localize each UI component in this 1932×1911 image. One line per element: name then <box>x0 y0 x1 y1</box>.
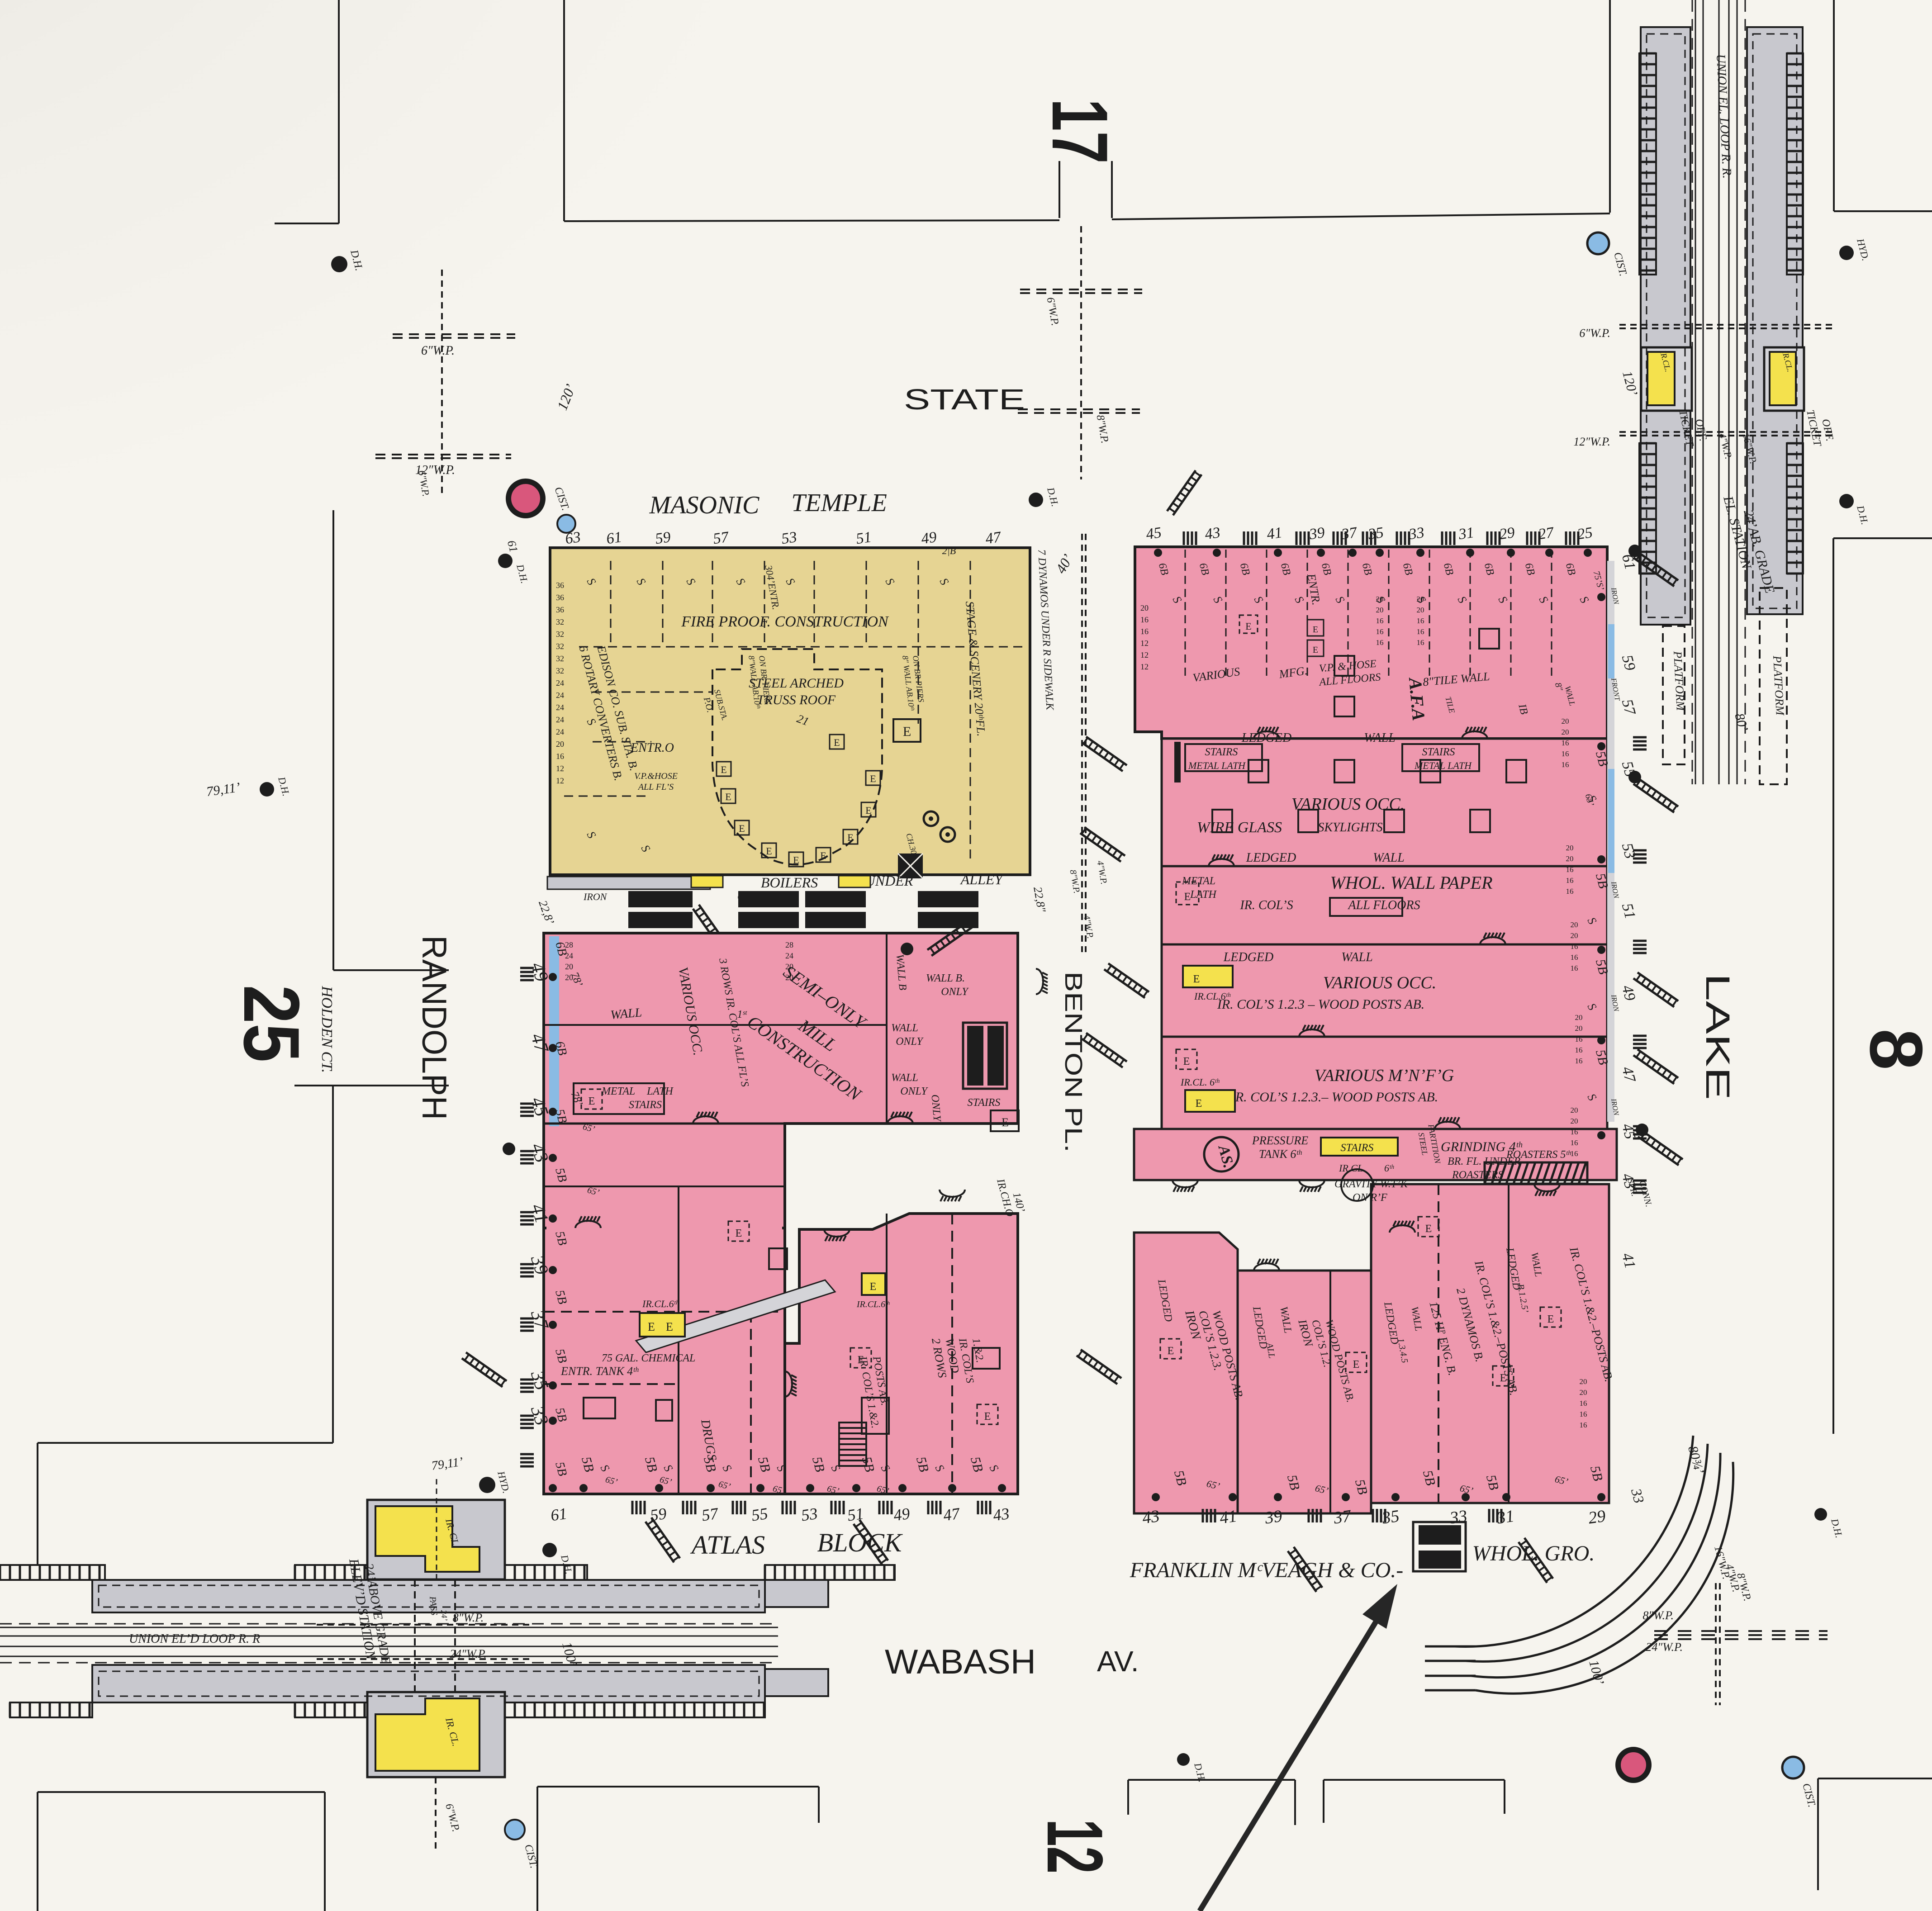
svg-text:35: 35 <box>1381 1507 1400 1528</box>
svg-text:20: 20 <box>1417 595 1424 603</box>
svg-text:ONLY: ONLY <box>900 1086 928 1097</box>
svg-text:16: 16 <box>1575 1035 1583 1043</box>
svg-text:25: 25 <box>228 985 316 1062</box>
svg-text:E: E <box>1002 1116 1009 1129</box>
svg-text:E: E <box>1184 891 1191 903</box>
svg-text:16: 16 <box>1562 739 1569 747</box>
svg-text:20: 20 <box>1140 603 1149 612</box>
svg-text:37: 37 <box>1332 1506 1353 1527</box>
svg-text:16: 16 <box>1571 964 1578 972</box>
svg-text:ALL FLOORS: ALL FLOORS <box>1348 898 1420 912</box>
svg-text:53: 53 <box>800 1504 819 1525</box>
svg-text:BOILERS: BOILERS <box>761 874 818 891</box>
svg-text:12: 12 <box>1031 1819 1120 1874</box>
svg-text:E: E <box>903 724 911 739</box>
svg-text:WALL: WALL <box>1341 950 1373 964</box>
svg-text:E: E <box>870 773 876 784</box>
svg-text:20: 20 <box>1562 728 1569 736</box>
svg-text:IR.CL.6ᵗʰ: IR.CL.6ᵗʰ <box>642 1298 679 1309</box>
svg-text:VARIOUS OCC.: VARIOUS OCC. <box>1323 973 1437 992</box>
svg-text:24’: 24’ <box>439 1610 449 1622</box>
svg-text:IR.CL.6ᵗʰ: IR.CL.6ᵗʰ <box>856 1299 890 1309</box>
svg-text:20: 20 <box>1571 1106 1578 1114</box>
svg-text:20: 20 <box>1575 1013 1583 1022</box>
svg-text:ENTR.O: ENTR.O <box>630 741 674 755</box>
svg-text:16: 16 <box>1376 616 1384 625</box>
svg-text:TANK 6ᵗʰ: TANK 6ᵗʰ <box>1259 1148 1302 1161</box>
svg-text:16: 16 <box>1376 638 1384 647</box>
svg-text:6″W.P.: 6″W.P. <box>1579 327 1610 340</box>
svg-text:METAL LATH: METAL LATH <box>1414 760 1472 771</box>
svg-text:20: 20 <box>1575 1024 1583 1033</box>
svg-text:31: 31 <box>1457 524 1475 543</box>
svg-text:E: E <box>865 805 871 816</box>
svg-text:WALL B.: WALL B. <box>926 972 965 984</box>
svg-text:39: 39 <box>1263 1507 1283 1528</box>
svg-text:61: 61 <box>550 1504 568 1525</box>
svg-text:49: 49 <box>920 529 938 547</box>
svg-text:8″W.P.: 8″W.P. <box>453 1611 484 1624</box>
svg-text:E: E <box>1547 1314 1554 1325</box>
svg-text:E: E <box>1193 973 1200 985</box>
svg-text:24: 24 <box>556 727 564 736</box>
svg-text:16: 16 <box>1566 876 1574 885</box>
svg-text:51: 51 <box>846 1504 865 1525</box>
svg-text:32: 32 <box>556 666 564 675</box>
svg-text:E: E <box>1425 1223 1432 1235</box>
svg-text:16: 16 <box>1562 760 1569 769</box>
svg-text:2|B: 2|B <box>942 545 956 556</box>
svg-text:E: E <box>1313 625 1318 635</box>
svg-text:ALL FL’S: ALL FL’S <box>637 782 674 792</box>
svg-text:12: 12 <box>556 764 564 773</box>
svg-text:36: 36 <box>556 593 564 602</box>
svg-text:LEDGED: LEDGED <box>1246 851 1296 865</box>
svg-text:E: E <box>721 764 726 775</box>
svg-text:20: 20 <box>1571 931 1578 940</box>
svg-text:51: 51 <box>855 529 873 547</box>
svg-text:20: 20 <box>785 973 793 982</box>
svg-text:E: E <box>1245 621 1251 632</box>
svg-text:16: 16 <box>1580 1399 1587 1408</box>
svg-text:E: E <box>725 791 731 802</box>
svg-text:43: 43 <box>1141 1507 1161 1528</box>
svg-text:E: E <box>1353 1359 1360 1370</box>
svg-text:METAL: METAL <box>601 1086 635 1097</box>
svg-text:E: E <box>1168 1345 1174 1357</box>
svg-text:59: 59 <box>654 529 672 547</box>
svg-text:16: 16 <box>1140 627 1149 636</box>
svg-text:20: 20 <box>556 740 564 749</box>
svg-text:BENTON PL.: BENTON PL. <box>1060 972 1087 1152</box>
svg-text:16: 16 <box>1580 1410 1587 1418</box>
svg-text:16: 16 <box>1571 1138 1578 1147</box>
svg-text:LATH: LATH <box>1190 889 1217 901</box>
svg-text:24: 24 <box>785 951 793 960</box>
svg-text:FRANKLIN MᶜVEAGH & CO.-: FRANKLIN MᶜVEAGH & CO.- <box>1130 1558 1404 1582</box>
svg-text:E: E <box>820 850 826 861</box>
svg-text:17: 17 <box>1035 99 1124 164</box>
svg-text:49: 49 <box>892 1504 911 1525</box>
svg-text:IR. COL’S: IR. COL’S <box>1239 898 1293 912</box>
svg-text:20: 20 <box>785 962 793 971</box>
svg-text:AV.: AV. <box>1097 1645 1139 1678</box>
svg-text:METAL LATH: METAL LATH <box>1188 760 1246 771</box>
svg-text:PASS: PASS <box>427 1596 439 1616</box>
svg-text:45: 45 <box>1145 524 1163 543</box>
svg-text:20: 20 <box>1571 1117 1578 1125</box>
svg-text:E: E <box>648 1320 655 1333</box>
svg-text:16: 16 <box>1417 638 1424 647</box>
svg-text:16: 16 <box>1571 1149 1578 1158</box>
svg-text:43: 43 <box>1204 524 1221 543</box>
svg-text:36: 36 <box>556 581 564 590</box>
svg-text:20: 20 <box>1376 606 1384 614</box>
svg-text:E: E <box>1196 1098 1202 1110</box>
svg-text:WALL: WALL <box>891 1022 918 1034</box>
svg-text:20: 20 <box>1562 717 1569 726</box>
svg-text:IR.CL.6ᵗʰ: IR.CL.6ᵗʰ <box>1194 991 1230 1002</box>
svg-text:24: 24 <box>565 951 573 960</box>
svg-text:WALL: WALL <box>891 1072 918 1084</box>
svg-text:29: 29 <box>1498 524 1516 543</box>
svg-text:39: 39 <box>1308 524 1326 543</box>
svg-text:E: E <box>793 854 799 866</box>
svg-text:16: 16 <box>1580 1421 1587 1429</box>
svg-text:20: 20 <box>1571 920 1578 929</box>
svg-text:LAKE: LAKE <box>1699 973 1737 1100</box>
svg-text:IR.CL. 6ᵗʰ: IR.CL. 6ᵗʰ <box>1180 1076 1220 1088</box>
svg-text:12: 12 <box>1140 639 1149 648</box>
svg-text:16: 16 <box>1575 1057 1583 1065</box>
svg-text:E: E <box>739 823 745 834</box>
svg-text:20: 20 <box>1580 1388 1587 1397</box>
svg-text:8: 8 <box>1855 1029 1932 1070</box>
svg-text:32: 32 <box>556 617 564 626</box>
svg-text:16: 16 <box>1140 615 1149 624</box>
svg-text:IR.CL.: IR.CL. <box>1339 1162 1366 1174</box>
svg-text:28: 28 <box>565 940 573 949</box>
svg-text:SKYLIGHTS: SKYLIGHTS <box>1318 820 1382 835</box>
svg-text:24: 24 <box>556 678 564 688</box>
svg-text:55: 55 <box>750 1504 769 1525</box>
svg-text:36: 36 <box>556 605 564 614</box>
svg-text:16: 16 <box>1376 627 1384 636</box>
svg-text:STAIRS: STAIRS <box>629 1099 662 1111</box>
svg-text:STATE: STATE <box>904 383 1025 416</box>
svg-text:12: 12 <box>1140 650 1149 659</box>
svg-text:16: 16 <box>1417 616 1424 625</box>
svg-text:41: 41 <box>1219 1507 1238 1528</box>
svg-text:UNION EL’D LOOP R. R: UNION EL’D LOOP R. R <box>129 1632 260 1646</box>
svg-text:E: E <box>766 845 772 857</box>
svg-text:16: 16 <box>1417 627 1424 636</box>
svg-text:16: 16 <box>1566 887 1574 896</box>
svg-text:WIRE GLASS: WIRE GLASS <box>1197 819 1282 836</box>
svg-text:24: 24 <box>556 691 564 700</box>
svg-text:16: 16 <box>556 752 564 761</box>
svg-text:UNDER: UNDER <box>865 873 913 889</box>
svg-text:24″W.P.: 24″W.P. <box>450 1647 487 1660</box>
svg-text:20: 20 <box>1566 854 1574 863</box>
svg-text:28: 28 <box>785 940 793 949</box>
svg-text:STAIRS: STAIRS <box>1422 746 1455 758</box>
svg-text:E: E <box>870 1281 877 1293</box>
svg-text:20: 20 <box>1376 595 1384 603</box>
svg-text:6″W.P.: 6″W.P. <box>421 344 455 358</box>
svg-text:E: E <box>984 1411 991 1423</box>
svg-text:29: 29 <box>1587 1507 1607 1528</box>
svg-text:20: 20 <box>565 973 573 982</box>
svg-text:ONLY: ONLY <box>896 1036 924 1048</box>
svg-text:IRON: IRON <box>583 891 608 902</box>
svg-text:24: 24 <box>556 715 564 724</box>
svg-text:12: 12 <box>1140 662 1149 671</box>
svg-text:12: 12 <box>556 776 564 785</box>
svg-text:8″W.P.: 8″W.P. <box>1642 1609 1674 1622</box>
svg-text:12″W.P.: 12″W.P. <box>1573 435 1610 448</box>
svg-text:LATH: LATH <box>646 1086 674 1097</box>
svg-text:20: 20 <box>1580 1377 1587 1386</box>
svg-text:16: 16 <box>1571 1128 1578 1136</box>
svg-text:20: 20 <box>565 962 573 971</box>
svg-text:41: 41 <box>1266 524 1283 543</box>
svg-text:20: 20 <box>1417 606 1424 614</box>
svg-text:E: E <box>1500 1372 1507 1384</box>
svg-text:24: 24 <box>556 703 564 712</box>
svg-text:IR. COL’S 1.2.3.– WOOD POSTS: IR. COL’S 1.2.3.– WOOD POSTS AB. <box>1230 1090 1438 1105</box>
svg-text:ONLY: ONLY <box>929 1094 943 1123</box>
svg-text:E: E <box>736 1228 742 1239</box>
svg-text:WHOL. WALL PAPER: WHOL. WALL PAPER <box>1330 873 1492 893</box>
svg-text:LEDGED: LEDGED <box>1241 731 1291 745</box>
svg-text:HOLDEN CT.: HOLDEN CT. <box>318 986 335 1073</box>
svg-text:STAIRS: STAIRS <box>1341 1142 1374 1154</box>
svg-text:ENTR. TANK 4ᵗʰ: ENTR. TANK 4ᵗʰ <box>560 1365 639 1378</box>
svg-text:STAIRS: STAIRS <box>968 1097 1001 1109</box>
svg-text:32: 32 <box>556 630 564 639</box>
svg-text:E: E <box>666 1320 673 1333</box>
svg-text:20: 20 <box>1566 844 1574 852</box>
svg-text:E: E <box>847 832 853 843</box>
svg-text:32: 32 <box>556 642 564 651</box>
svg-text:E: E <box>858 1354 864 1366</box>
svg-text:RANDOLPH: RANDOLPH <box>415 935 453 1120</box>
svg-text:TEMPLE: TEMPLE <box>791 489 887 517</box>
svg-text:53: 53 <box>780 529 798 547</box>
svg-text:1ˢᵗ: 1ˢᵗ <box>737 1009 747 1020</box>
svg-text:STAIRS: STAIRS <box>1205 746 1238 758</box>
svg-text:IR. COL’S 1.2.3 – WOOD POSTS: IR. COL’S 1.2.3 – WOOD POSTS AB. <box>1217 997 1424 1012</box>
svg-text:WALL: WALL <box>1364 731 1396 745</box>
svg-text:16: 16 <box>1571 953 1578 962</box>
svg-text:ATLAS: ATLAS <box>690 1530 765 1560</box>
svg-text:WALL: WALL <box>1373 851 1405 865</box>
svg-text:16: 16 <box>1571 942 1578 951</box>
svg-text:WABASH: WABASH <box>885 1643 1036 1681</box>
svg-text:16: 16 <box>1562 749 1569 758</box>
svg-text:MASONIC: MASONIC <box>649 491 760 519</box>
svg-text:E: E <box>1313 645 1318 655</box>
svg-text:WALL: WALL <box>610 1005 642 1022</box>
svg-text:ROASTERS 5ᵗʰ: ROASTERS 5ᵗʰ <box>1506 1149 1571 1161</box>
svg-text:16: 16 <box>1566 865 1574 874</box>
svg-text:ONLY: ONLY <box>941 986 969 998</box>
svg-text:PRESSURE: PRESSURE <box>1252 1134 1308 1147</box>
svg-text:V.P.&HOSE: V.P.&HOSE <box>634 771 678 781</box>
svg-text:E: E <box>589 1095 595 1107</box>
svg-text:E: E <box>834 737 840 748</box>
svg-text:16: 16 <box>1575 1046 1583 1054</box>
svg-text:61: 61 <box>605 529 623 547</box>
svg-text:ALLEY: ALLEY <box>960 871 1004 887</box>
svg-text:32: 32 <box>556 654 564 663</box>
svg-text:6ᵗʰ: 6ᵗʰ <box>1384 1162 1394 1174</box>
svg-text:24″W.P.: 24″W.P. <box>1646 1641 1683 1654</box>
svg-text:E: E <box>1183 1056 1190 1067</box>
svg-text:75 GAL. CHEMICAL: 75 GAL. CHEMICAL <box>602 1352 695 1364</box>
svg-text:43: 43 <box>992 1504 1011 1525</box>
svg-text:VARIOUS OCC.: VARIOUS OCC. <box>1291 795 1405 814</box>
svg-text:LEDGED: LEDGED <box>1223 950 1273 964</box>
svg-text:VARIOUS M’N’F’G: VARIOUS M’N’F’G <box>1315 1066 1454 1085</box>
